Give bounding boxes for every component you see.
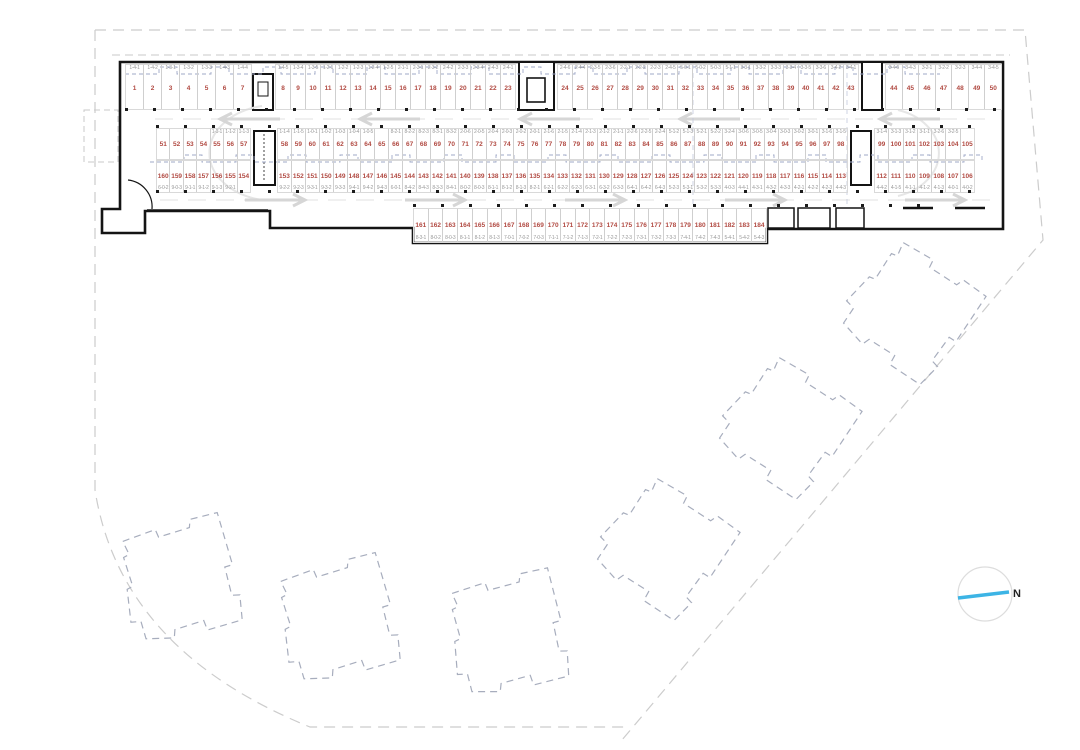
space-number: 105 xyxy=(955,141,980,148)
parking-space: 1-1-3 57 xyxy=(238,129,250,159)
space-number: 57 xyxy=(232,141,256,148)
unit-code: 3-1-5 xyxy=(822,129,859,136)
parking-row-mid-upper-1: 51 52 53 54 1-1-1 55 1-1-2 56 1-1-3 57 xyxy=(156,128,251,160)
space-number: 154 xyxy=(232,172,256,179)
column-row xyxy=(413,204,940,207)
service-room xyxy=(768,208,794,228)
space-number: 184 xyxy=(746,221,772,228)
parking-row-top-4: 3-4-6 44 3-4-3 45 3-2-1 46 3-2-2 47 3-2-… xyxy=(885,64,1002,110)
space-number: 43 xyxy=(838,85,864,92)
service-room xyxy=(798,208,830,228)
parking-row-top-3: 2-4-6 24 2-4-4 25 2-3-5 26 2-3-6 27 2-2-… xyxy=(557,64,859,110)
parking-row-top-1: 1-4-1 1 1-4-2 2 1-3-1 3 1-3-2 4 1-3-3 5 … xyxy=(125,64,252,110)
space-number: 113 xyxy=(828,172,853,179)
space-number: 23 xyxy=(495,85,521,92)
parking-row-mid-upper-2: 1-1-4 58 1-1-5 59 1-0-1 60 1-0-2 61 1-0-… xyxy=(277,128,848,160)
space-number: 106 xyxy=(955,172,980,179)
future-building-outlines xyxy=(115,230,992,698)
parking-space: 3-4-5 50 xyxy=(985,65,1001,109)
parking-row-top-2: 1-4-5 8 1-3-4 9 1-3-5 10 1-2-1 11 1-2-2 … xyxy=(275,64,516,110)
space-number: 7 xyxy=(228,85,257,92)
column-row xyxy=(125,108,1003,111)
future-building-2 xyxy=(273,551,403,685)
unit-code: 1-1-3 xyxy=(226,129,262,136)
parking-row-mid-lower-3: 4-4-2 112 4-1-5 111 4-1-1 110 4-1-2 109 … xyxy=(874,160,975,193)
plan-linework xyxy=(0,0,1080,750)
service-room xyxy=(836,208,864,228)
parking-space: 5-4-3 184 xyxy=(752,209,766,242)
parking-row-bottom: 8-3-1 161 8-0-2 162 8-0-3 163 8-1-1 164 … xyxy=(413,208,767,243)
future-building-4 xyxy=(586,466,746,627)
future-building-1 xyxy=(115,511,245,645)
parking-space: 3-4-1 43 xyxy=(844,65,858,109)
north-arrow xyxy=(958,567,1012,621)
parking-space: 2-4-1 23 xyxy=(501,65,515,109)
parking-space: 105 xyxy=(961,129,974,159)
parking-space: 1-4-4 7 xyxy=(234,65,251,109)
parking-space: 154 xyxy=(238,161,250,192)
unit-code: 5-4-3 xyxy=(740,235,778,242)
parking-row-mid-lower-1: 6-0-2 160 9-0-3 159 9-1-1 158 9-1-2 157 … xyxy=(156,160,251,193)
space-number: 50 xyxy=(979,85,1007,92)
site-plan-canvas: 1-4-1 1 1-4-2 2 1-3-1 3 1-3-2 4 1-3-3 5 … xyxy=(0,0,1080,750)
future-building-6 xyxy=(832,230,992,391)
unit-code: 2-4-1 xyxy=(489,65,527,72)
parking-space: 3-1-5 98 xyxy=(834,129,847,159)
future-building-3 xyxy=(444,567,571,697)
north-line xyxy=(958,592,1009,598)
column-row xyxy=(156,190,975,193)
parking-row-mid-lower-2: 9-2-2 153 9-2-3 152 9-3-1 151 9-3-2 150 … xyxy=(277,160,848,193)
parking-row-mid-upper-3: 3-1-4 99 3-1-3 100 3-1-2 101 3-1-1 102 3… xyxy=(874,128,975,160)
column-row xyxy=(156,125,975,128)
unit-code: 3-4-5 xyxy=(973,65,1013,72)
unit-code: 3-4-1 xyxy=(832,65,870,72)
north-label: N xyxy=(1013,588,1021,600)
parking-space: 4-0-2 106 xyxy=(961,161,974,192)
space-number: 98 xyxy=(828,141,853,148)
roof-overhang-left xyxy=(84,110,118,162)
unit-code: 1-4-4 xyxy=(222,65,263,72)
parking-space: 4-4-3 113 xyxy=(834,161,847,192)
future-building-5 xyxy=(708,345,868,506)
